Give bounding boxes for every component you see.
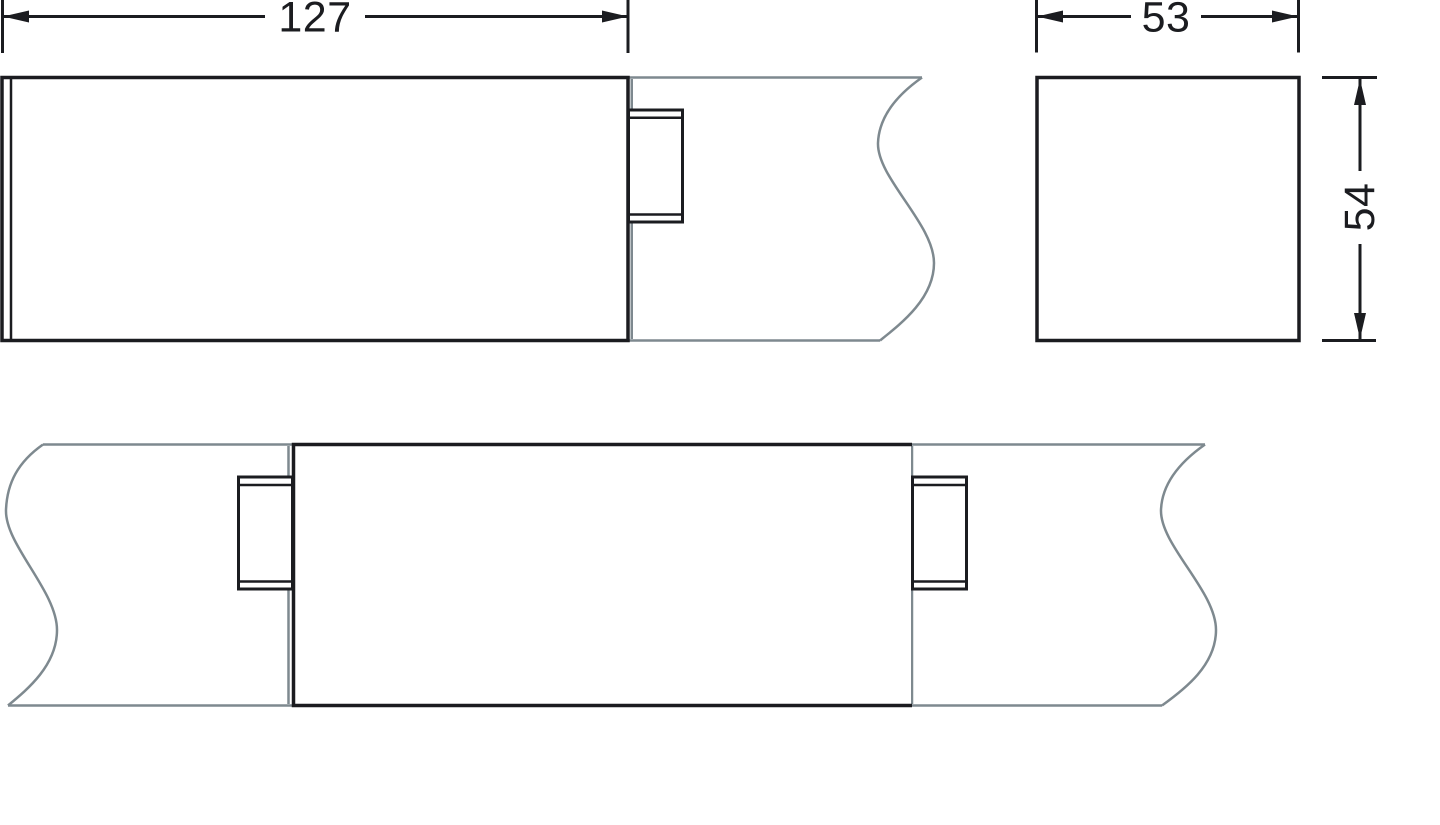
break-s-curve (6, 445, 57, 706)
drawing-svg: 127 53 54 (0, 0, 1440, 825)
joint-view-body (294, 445, 913, 706)
dim-width-53: 53 (1037, 0, 1299, 53)
dim-height-label: 54 (1336, 183, 1384, 232)
arrowhead-left (1037, 11, 1063, 23)
arrowhead-left (3, 11, 29, 23)
dim-length-label: 127 (278, 0, 351, 42)
joint-view-left-clip (239, 477, 293, 589)
cover-body (2, 78, 628, 341)
arrowhead-right (602, 11, 628, 23)
clip-body (913, 477, 967, 589)
part-outlines (2, 78, 1299, 706)
joint-view-right-clip (913, 477, 967, 589)
arrowhead-down (1354, 313, 1366, 339)
joint-cover-fill (294, 446, 912, 704)
side-view-body (2, 78, 628, 341)
break-s-curve (878, 78, 934, 341)
dim-width-label: 53 (1142, 0, 1191, 42)
clip-body (629, 110, 683, 222)
break-s-curve (1161, 445, 1216, 706)
clip-body (239, 477, 293, 589)
technical-drawing: 127 53 54 (0, 0, 1440, 825)
side-view-clip (629, 110, 683, 222)
arrowhead-up (1354, 79, 1366, 105)
dim-height-54: 54 (1322, 78, 1384, 341)
arrowhead-right (1272, 11, 1298, 23)
dim-length-127: 127 (3, 0, 629, 53)
cross-section-body (1037, 78, 1299, 341)
